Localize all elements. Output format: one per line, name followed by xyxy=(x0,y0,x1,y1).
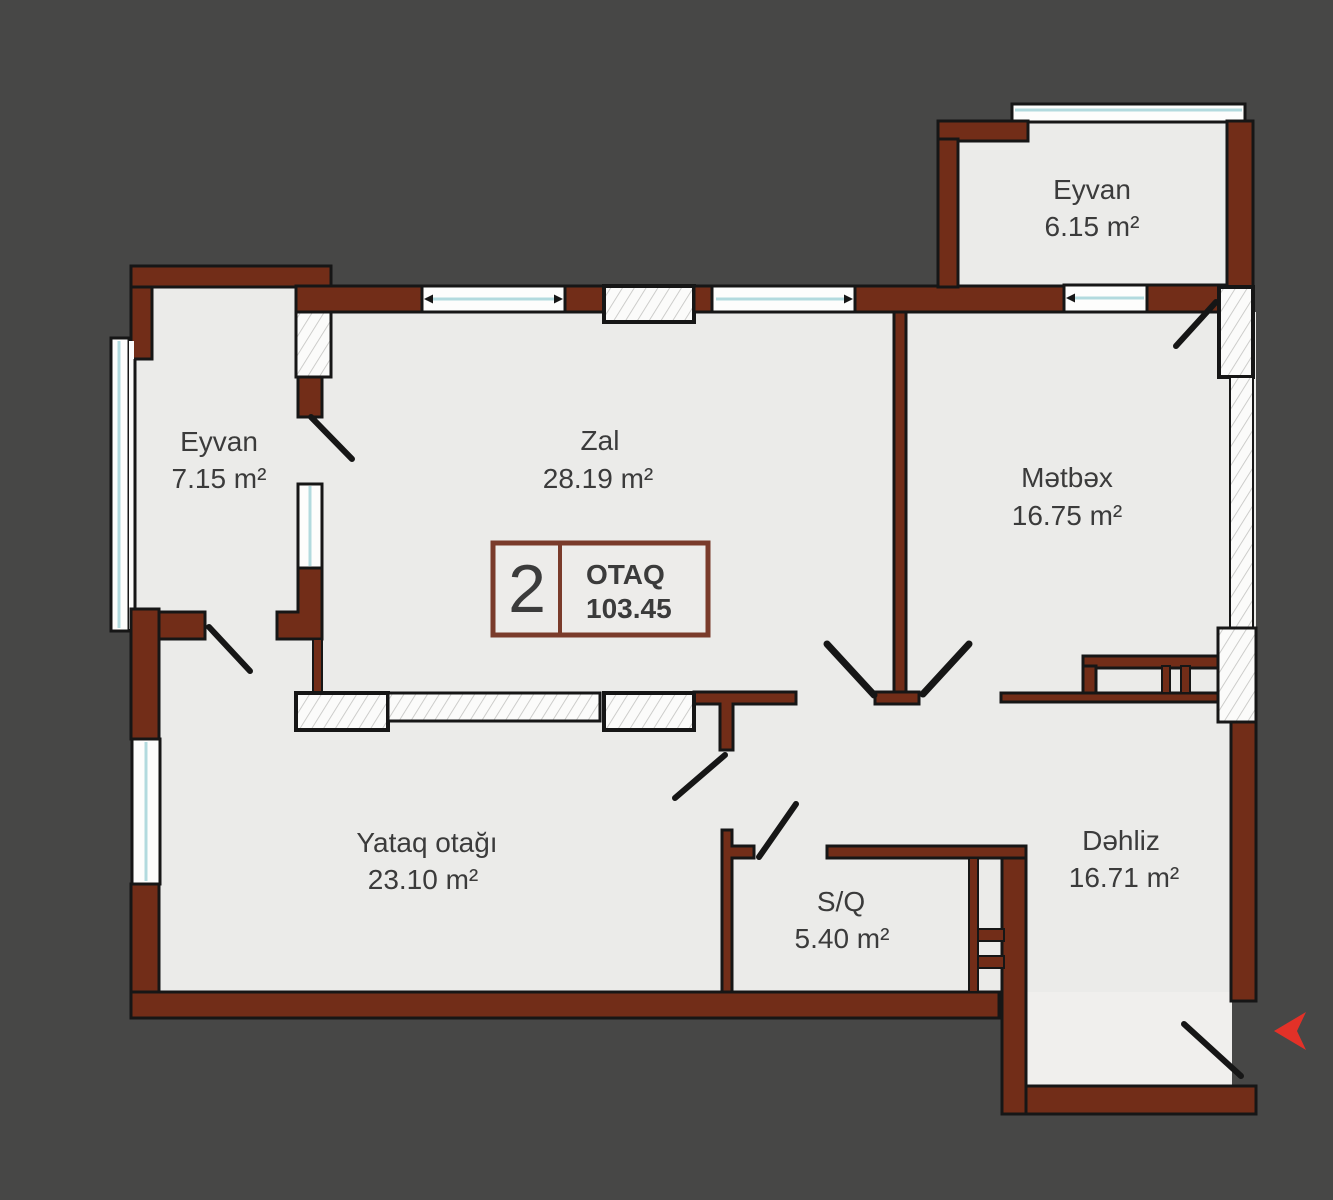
svg-text:7.15 m²: 7.15 m² xyxy=(172,463,267,494)
svg-text:103.45: 103.45 xyxy=(586,593,672,624)
svg-text:23.10 m²: 23.10 m² xyxy=(368,864,479,895)
svg-text:Yataq otağı: Yataq otağı xyxy=(356,827,497,858)
svg-text:Dəhliz: Dəhliz xyxy=(1082,825,1160,856)
svg-text:2: 2 xyxy=(508,551,546,627)
svg-text:28.19 m²: 28.19 m² xyxy=(543,463,654,494)
svg-text:6.15 m²: 6.15 m² xyxy=(1045,211,1140,242)
svg-text:Mətbəx: Mətbəx xyxy=(1021,462,1113,493)
svg-text:16.75 m²: 16.75 m² xyxy=(1012,500,1123,531)
svg-text:Eyvan: Eyvan xyxy=(1053,174,1131,205)
svg-text:OTAQ: OTAQ xyxy=(586,559,665,590)
svg-text:Eyvan: Eyvan xyxy=(180,426,258,457)
svg-text:S/Q: S/Q xyxy=(817,886,865,917)
svg-text:16.71 m²: 16.71 m² xyxy=(1069,862,1180,893)
svg-text:Zal: Zal xyxy=(581,425,620,456)
svg-text:5.40 m²: 5.40 m² xyxy=(795,923,890,954)
